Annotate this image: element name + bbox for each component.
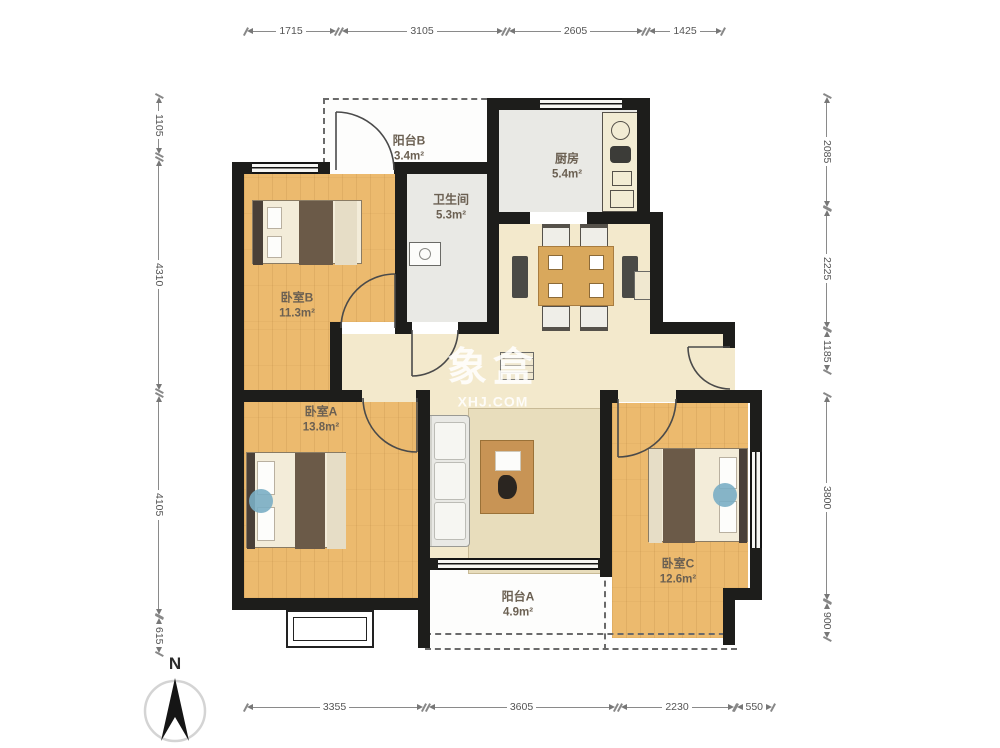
dim-bottom-3: 2230 — [619, 700, 735, 714]
floor-plan: 阳台B3.4m² 厨房5.4m² 卫生间5.3m² 卧室B11.3m² 卧室A1… — [0, 0, 1000, 748]
dim-right-4: 3800 — [820, 394, 834, 601]
dim-right-1: 2085 — [820, 95, 834, 208]
balcony-b-door-arc — [336, 112, 394, 170]
bedroom-a-door-arc — [363, 398, 417, 452]
bathroom-door-arc — [412, 330, 458, 376]
dim-bottom-4: 550 — [735, 700, 765, 714]
dim-left-3: 4105 — [152, 394, 166, 616]
bathroom-label: 卫生间5.3m² — [433, 193, 469, 224]
door-arcs-overlay — [0, 0, 1000, 748]
bedroom-b-label: 卧室B11.3m² — [279, 291, 315, 322]
dim-top-2: 3105 — [340, 24, 504, 38]
dim-top-3: 2605 — [507, 24, 644, 38]
bedroom-c-door-arc — [618, 399, 676, 457]
dim-left-4: 615 — [152, 616, 166, 652]
north-arrow-icon — [161, 678, 189, 741]
bedroom-c-label: 卧室C12.6m² — [660, 557, 696, 588]
balcony-b-label: 阳台B3.4m² — [393, 134, 426, 165]
dim-right-3: 1185 — [820, 329, 834, 394]
dim-bottom-1: 3355 — [245, 700, 424, 714]
dim-top-1: 1715 — [245, 24, 337, 38]
dim-right-5: 900 — [820, 601, 834, 650]
dim-bottom-2: 3605 — [427, 700, 616, 714]
bedroom-b-door-arc — [341, 274, 395, 328]
entry-door-arc — [688, 347, 730, 389]
dim-left-1: 1105 — [152, 95, 166, 155]
dim-top-4: 1425 — [647, 24, 723, 38]
bedroom-a-label: 卧室A13.8m² — [303, 405, 339, 436]
dim-right-2: 2225 — [820, 208, 834, 329]
kitchen-label: 厨房5.4m² — [552, 152, 582, 183]
north-label: N — [169, 654, 181, 674]
balcony-a-label: 阳台A4.9m² — [502, 590, 535, 621]
dim-left-2: 4310 — [152, 158, 166, 391]
